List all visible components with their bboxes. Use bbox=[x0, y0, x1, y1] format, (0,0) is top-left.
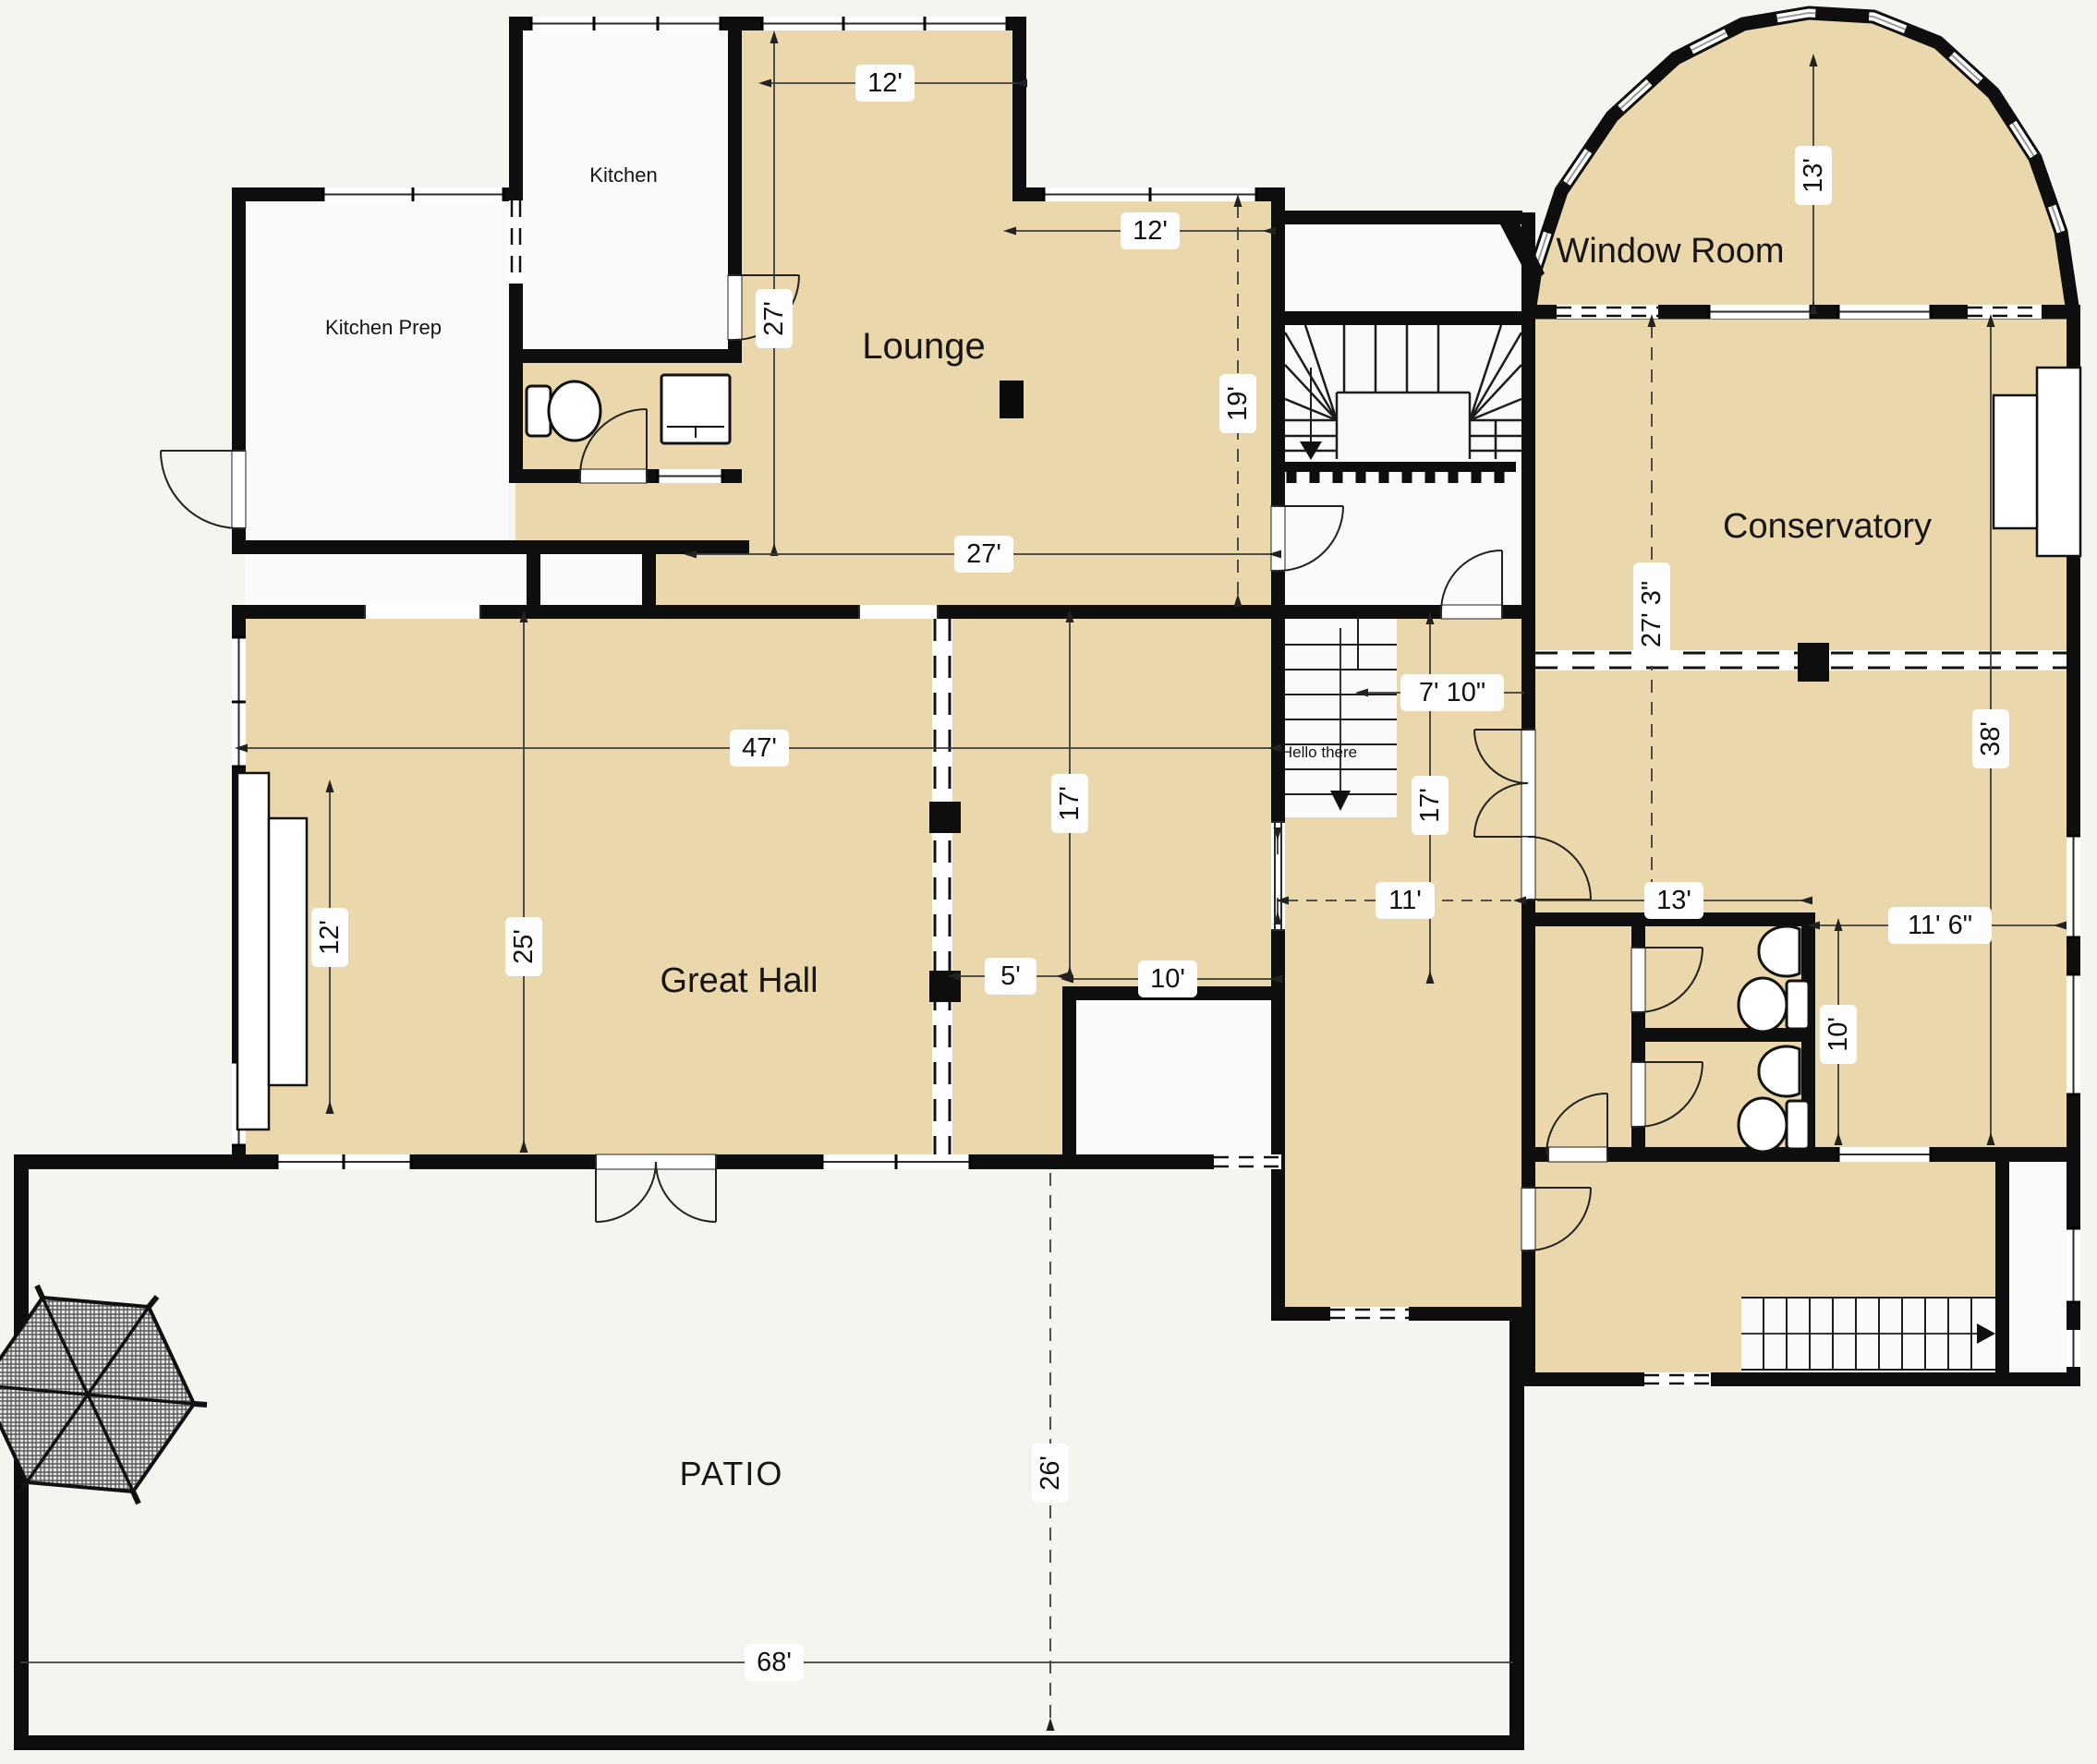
svg-text:12': 12' bbox=[315, 920, 345, 955]
svg-text:10': 10' bbox=[1824, 1017, 1853, 1052]
dim-label: 12' bbox=[855, 65, 915, 102]
dim-label: 11' 6" bbox=[1888, 907, 1992, 944]
room-label-patio: PATIO bbox=[680, 1455, 784, 1492]
toilet-bowl-icon bbox=[1739, 978, 1787, 1032]
room-label-kitchen-prep: Kitchen Prep bbox=[325, 316, 442, 339]
column-post bbox=[1798, 643, 1829, 682]
column-post bbox=[929, 971, 961, 1002]
store-room bbox=[1076, 1000, 1271, 1154]
dim-label: 68' bbox=[745, 1644, 804, 1681]
right-stair-area bbox=[1741, 1298, 1995, 1372]
toilet-tank-icon bbox=[1787, 1101, 1809, 1149]
dim-label: 10' bbox=[1820, 1005, 1857, 1064]
svg-text:5': 5' bbox=[1000, 961, 1021, 991]
room-label-window-room: Window Room bbox=[1556, 232, 1784, 271]
dim-label: 27' 3" bbox=[1633, 562, 1670, 666]
svg-text:27': 27' bbox=[759, 301, 789, 336]
svg-text:27' 3": 27' 3" bbox=[1637, 581, 1667, 647]
dim-label: 38' bbox=[1972, 709, 2009, 768]
sink-icon bbox=[1759, 1046, 1800, 1096]
great-hall-fireplace-icon bbox=[237, 773, 307, 1130]
dim-label: 25' bbox=[505, 917, 542, 976]
room-label-conservatory: Conservatory bbox=[1723, 507, 1932, 546]
svg-text:68': 68' bbox=[757, 1648, 792, 1677]
closet-right bbox=[540, 554, 642, 608]
svg-text:38': 38' bbox=[1976, 721, 2006, 756]
svg-text:11': 11' bbox=[1388, 886, 1422, 915]
dim-label: 13' bbox=[1644, 882, 1703, 919]
dim-label: 11' bbox=[1376, 882, 1435, 919]
lounge-column bbox=[1000, 381, 1024, 418]
stairwell bbox=[1285, 224, 1521, 459]
dim-label: 12' bbox=[311, 908, 348, 967]
sink-icon bbox=[1759, 926, 1800, 976]
svg-text:47': 47' bbox=[742, 733, 777, 763]
svg-text:13': 13' bbox=[1656, 886, 1691, 915]
wc-toilet-icon bbox=[527, 381, 600, 441]
room-label-lounge: Lounge bbox=[862, 326, 985, 367]
closet-left bbox=[246, 554, 527, 608]
gazebo-icon bbox=[0, 1286, 207, 1504]
svg-text:7' 10": 7' 10" bbox=[1419, 678, 1485, 707]
closet-strip-floor bbox=[649, 554, 749, 608]
stair-note-text: Hello there bbox=[1281, 743, 1357, 761]
dim-label: 27' bbox=[756, 289, 793, 348]
svg-text:13': 13' bbox=[1799, 158, 1828, 193]
dim-label: 27' bbox=[954, 536, 1013, 573]
svg-text:26': 26' bbox=[1036, 1456, 1065, 1491]
svg-text:12': 12' bbox=[867, 68, 903, 98]
dim-label: 17' bbox=[1412, 776, 1449, 835]
svg-text:17': 17' bbox=[1055, 786, 1085, 821]
dim-label: 47' bbox=[730, 730, 789, 767]
svg-text:19': 19' bbox=[1223, 386, 1253, 421]
svg-text:27': 27' bbox=[966, 539, 1001, 569]
dim-label: 7' 10" bbox=[1400, 674, 1504, 711]
column-post bbox=[929, 802, 961, 833]
dim-label: 17' bbox=[1051, 774, 1088, 833]
kitchen-room bbox=[523, 30, 728, 349]
toilet-bowl-icon bbox=[1739, 1098, 1787, 1152]
toilet-tank-icon bbox=[1787, 981, 1809, 1029]
floor-plan-canvas: 12' 12' 27' 19' 27' 13' 27' 3" 38' 47' 7… bbox=[0, 0, 2097, 1764]
svg-text:11' 6": 11' 6" bbox=[1908, 911, 1972, 940]
dim-label: 5' bbox=[985, 958, 1036, 995]
conservatory-fireplace-icon bbox=[1994, 368, 2080, 556]
store-room-right bbox=[2009, 1162, 2067, 1372]
wc-sink-icon bbox=[661, 375, 730, 443]
dim-label: 26' bbox=[1032, 1444, 1069, 1503]
dim-label: 13' bbox=[1795, 146, 1832, 205]
svg-text:25': 25' bbox=[509, 929, 539, 964]
svg-text:17': 17' bbox=[1415, 788, 1445, 823]
dim-label: 19' bbox=[1219, 374, 1256, 433]
kitchen-prep-room bbox=[246, 201, 509, 540]
svg-text:12': 12' bbox=[1133, 216, 1168, 246]
dim-label: 12' bbox=[1121, 212, 1180, 249]
room-label-kitchen: Kitchen bbox=[589, 163, 657, 187]
room-label-great-hall: Great Hall bbox=[660, 961, 818, 1000]
dim-label: 10' bbox=[1138, 961, 1197, 997]
svg-text:10': 10' bbox=[1150, 964, 1185, 994]
